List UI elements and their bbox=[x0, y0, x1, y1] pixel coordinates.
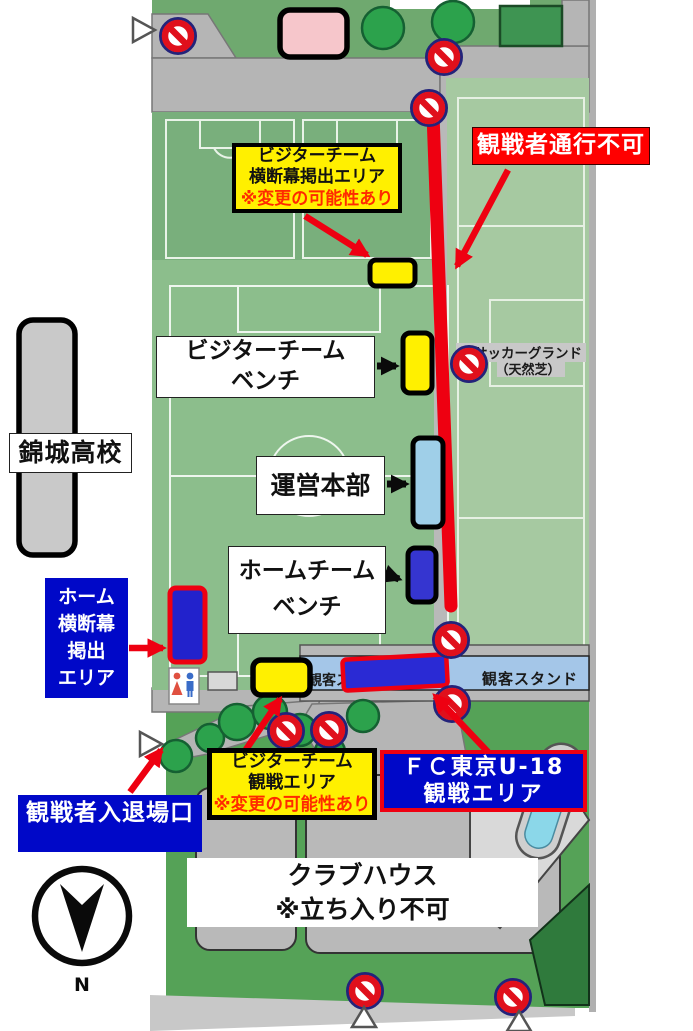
ground-line1: サッカーグランド bbox=[474, 345, 582, 362]
clubhouse-line1: クラブハウス bbox=[287, 859, 437, 893]
label-no-passage: 観戦者通行不可 bbox=[472, 127, 650, 165]
visitor-banner-marker bbox=[370, 260, 415, 286]
home-bench-line1: ホームチーム bbox=[239, 554, 376, 590]
label-visitor-spectating-area: ビジターチーム 観戦エリア ※変更の可能性あり bbox=[207, 748, 377, 820]
label-school: 錦城高校 bbox=[9, 433, 132, 473]
compass-n: N bbox=[74, 974, 90, 996]
dark-green-plot bbox=[500, 6, 562, 46]
home-bench-line2: ベンチ bbox=[273, 590, 342, 626]
home-banner-line2: 横断幕 bbox=[58, 611, 115, 638]
label-fc-tokyo-spectating-area: ＦＣ東京U-18 観戦エリア bbox=[380, 750, 587, 812]
visitor-spectating-marker bbox=[253, 660, 310, 695]
gate-text: 観戦者入退場口 bbox=[26, 800, 194, 827]
visitor-banner-note: ※変更の可能性あり bbox=[241, 189, 394, 210]
home-banner-line1: ホーム bbox=[58, 584, 114, 611]
ground-line2: （天然芝） bbox=[495, 362, 560, 378]
label-no-passage-text: 観戦者通行不可 bbox=[477, 132, 645, 159]
visitor-bench-line2: ベンチ bbox=[231, 367, 300, 397]
home-banner-line3: 掲出 bbox=[67, 638, 105, 665]
small-building bbox=[208, 672, 237, 690]
label-operations-hq: 運営本部 bbox=[256, 456, 385, 515]
operations-hq-marker bbox=[413, 438, 443, 527]
visitor-banner-line2: 横断幕掲出エリア bbox=[249, 167, 385, 188]
home-banner-marker bbox=[170, 588, 205, 662]
fc-tokyo-line2: 観戦エリア bbox=[423, 781, 543, 809]
label-home-bench: ホームチーム ベンチ bbox=[228, 546, 386, 634]
label-visitor-bench: ビジターチーム ベンチ bbox=[156, 336, 375, 398]
school-text: 錦城高校 bbox=[18, 438, 122, 468]
stand-text: 観客スタンド bbox=[482, 670, 578, 688]
visitor-bench-marker bbox=[403, 333, 432, 393]
hq-text: 運営本部 bbox=[270, 471, 370, 501]
home-banner-line4: エリア bbox=[58, 665, 115, 692]
label-visitor-banner-area: ビジターチーム 横断幕掲出エリア ※変更の可能性あり bbox=[232, 143, 402, 213]
fc-tokyo-line1: ＦＣ東京U-18 bbox=[403, 754, 565, 782]
label-spectator-gate: 観戦者入退場口 bbox=[18, 795, 202, 852]
label-clubhouse: クラブハウス ※立ち入り不可 bbox=[187, 858, 538, 927]
visitor-area-line2: 観戦エリア bbox=[248, 773, 336, 794]
pink-building bbox=[280, 10, 347, 57]
visitor-banner-line1: ビジターチーム bbox=[258, 146, 376, 167]
visitor-area-note: ※変更の可能性あり bbox=[213, 795, 370, 816]
compass: N bbox=[35, 869, 129, 996]
stadium-facility-map: 観客ス 観客スタンド サッカーグランド （天然芝） bbox=[0, 0, 693, 1031]
visitor-area-line1: ビジターチーム bbox=[231, 752, 353, 773]
home-bench-marker bbox=[408, 548, 436, 602]
clubhouse-line2: ※立ち入り不可 bbox=[275, 893, 449, 927]
restroom-icon bbox=[169, 668, 199, 704]
fc-tokyo-spectating-marker bbox=[342, 654, 447, 690]
label-home-banner-area: ホーム 横断幕 掲出 エリア bbox=[45, 578, 128, 698]
visitor-bench-line1: ビジターチーム bbox=[186, 337, 346, 367]
